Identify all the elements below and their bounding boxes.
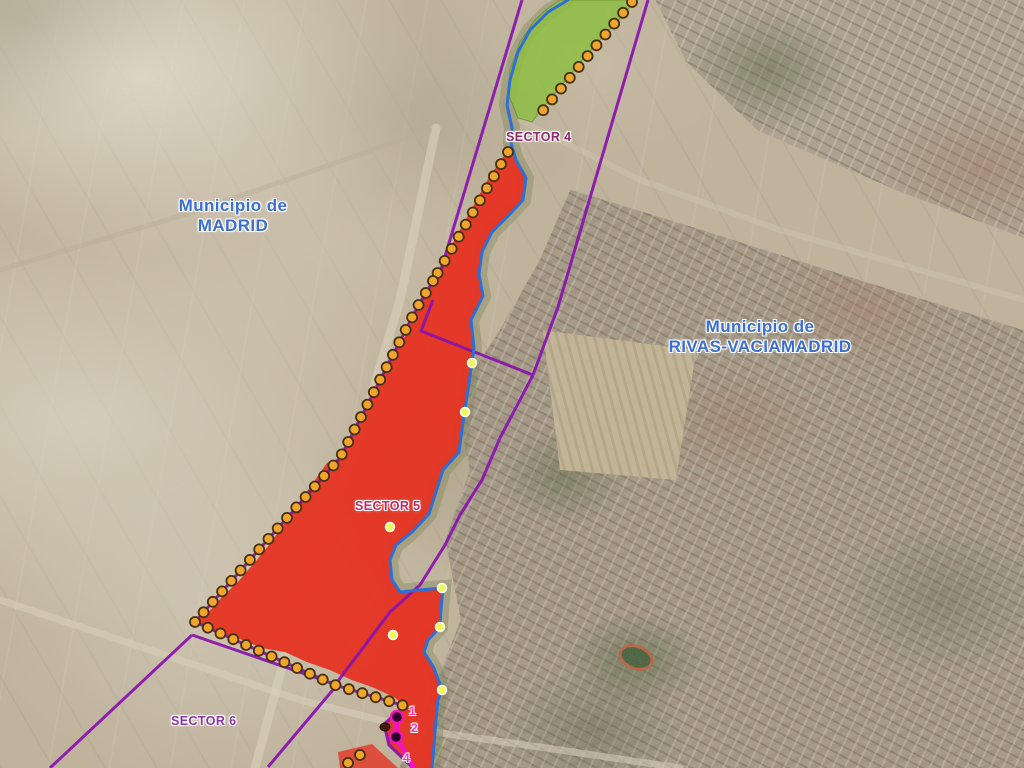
label-municipio-rivas-line1: Municipio de (615, 317, 905, 337)
label-vertex-2: 2 (411, 722, 418, 736)
label-municipio-madrid-line2: MADRID (138, 216, 328, 236)
label-municipio-madrid-line1: Municipio de (138, 196, 328, 216)
label-sector-4: SECTOR 4 (506, 130, 572, 144)
label-vertex-4: 4 (403, 752, 410, 766)
label-vertex-1: 1 (409, 705, 416, 719)
label-sector-6: SECTOR 6 (171, 714, 237, 728)
label-municipio-madrid: Municipio de MADRID (138, 196, 328, 235)
label-municipio-rivas-line2: RIVAS-VACIAMADRID (615, 337, 905, 357)
label-sector-5: SECTOR 5 (355, 499, 421, 513)
map-canvas[interactable]: Municipio de MADRID Municipio de RIVAS-V… (0, 0, 1024, 768)
label-municipio-rivas: Municipio de RIVAS-VACIAMADRID (615, 317, 905, 356)
